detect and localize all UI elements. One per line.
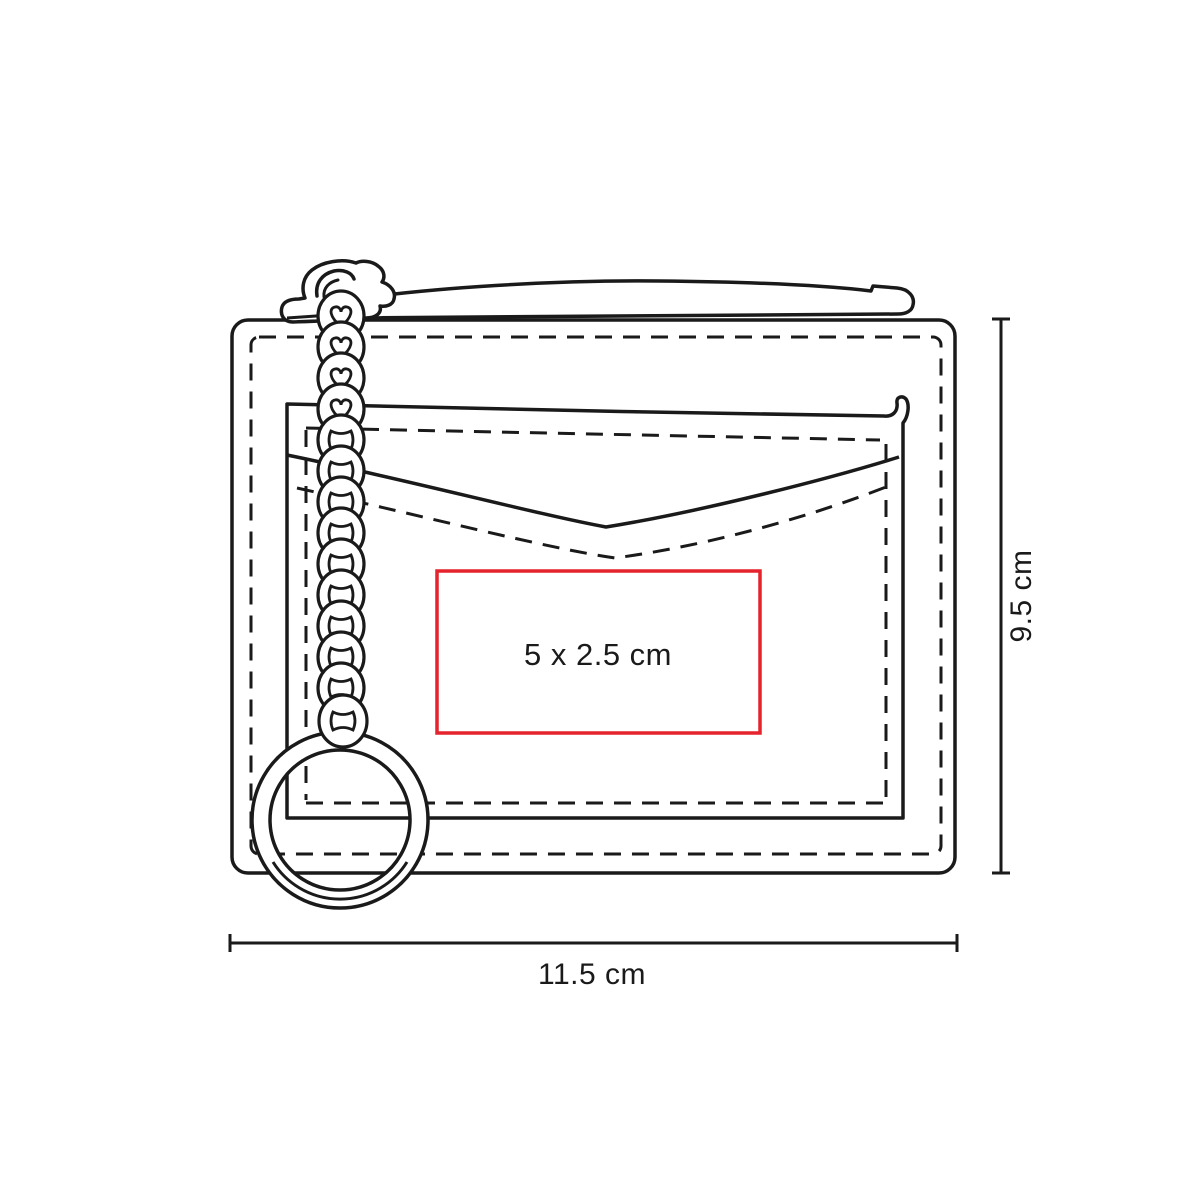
wallet-keychain-diagram: 5 x 2.5 cm [0, 0, 1200, 1200]
width-dimension-label: 11.5 cm [538, 958, 646, 991]
width-dimension [230, 934, 957, 952]
height-dimension-label: 9.5 cm [1005, 549, 1038, 642]
print-area-box: 5 x 2.5 cm [437, 571, 760, 733]
chain-connector-link-icon [319, 695, 367, 747]
zipper-band [332, 281, 913, 318]
print-area-label: 5 x 2.5 cm [524, 637, 672, 672]
product-diagram-canvas: 5 x 2.5 cm [0, 0, 1200, 1200]
keychain-chain-icon [318, 291, 364, 713]
width-dimension-line [230, 934, 957, 952]
